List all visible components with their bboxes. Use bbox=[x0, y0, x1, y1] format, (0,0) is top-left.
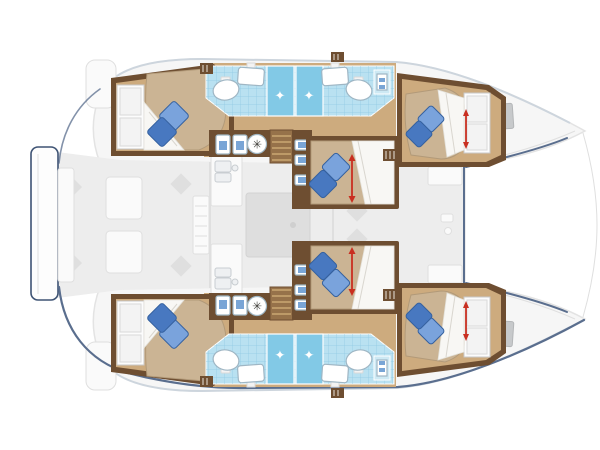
cockpit-step bbox=[58, 168, 74, 282]
catamaran-floor-plan: ✦ ✦ bbox=[0, 0, 600, 450]
bridle-line bbox=[583, 133, 597, 317]
floor-plan-canvas: ✦ ✦ bbox=[0, 0, 600, 450]
salon-sofa bbox=[193, 196, 209, 254]
transom-platform bbox=[31, 147, 58, 300]
windlass bbox=[441, 214, 453, 222]
deck-fitting bbox=[445, 228, 452, 235]
table-fitting bbox=[290, 222, 296, 228]
